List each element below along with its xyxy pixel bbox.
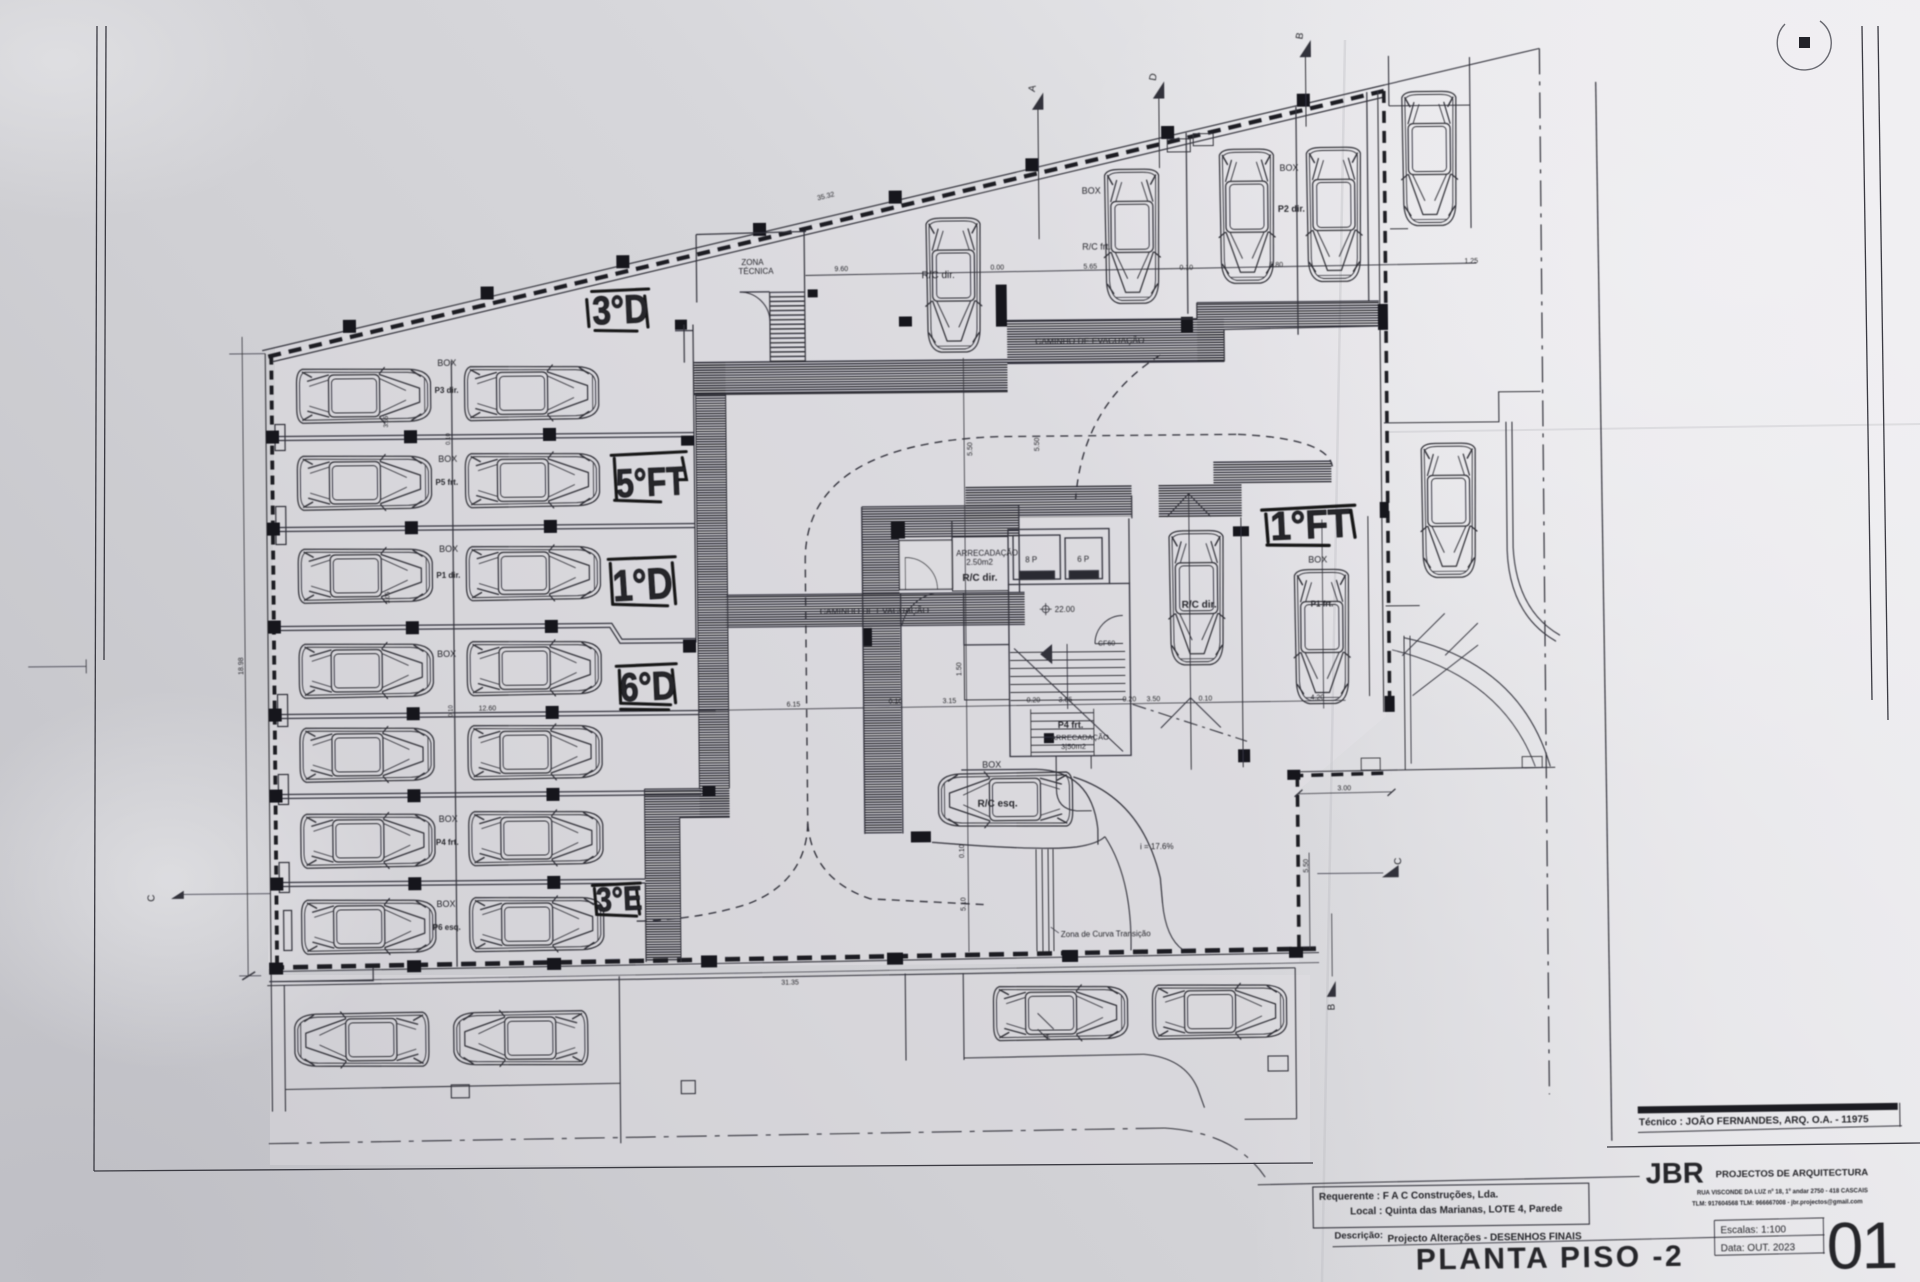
svg-text:P4 frt.: P4 frt. [436,838,459,847]
svg-text:4.20: 4.20 [1311,695,1325,702]
svg-text:TÉCNICA: TÉCNICA [738,267,774,276]
svg-text:R/C dir.: R/C dir. [1182,600,1217,611]
svg-text:3°D: 3°D [591,287,649,333]
svg-text:0.00: 0.00 [990,265,1004,272]
svg-text:0.10: 0.10 [449,705,455,717]
svg-text:0.10: 0.10 [959,844,966,858]
svg-text:Zona de Curva Transição: Zona de Curva Transição [1061,929,1151,939]
svg-text:BOX: BOX [982,760,1001,770]
svg-text:3.00: 3.00 [1337,785,1351,792]
svg-text:5.65: 5.65 [1083,264,1097,271]
svg-text:P4 frt.: P4 frt. [1058,720,1084,730]
svg-text:P1 frt.: P1 frt. [1311,599,1334,608]
svg-text:PLANTA PISO -2: PLANTA PISO -2 [1416,1240,1685,1277]
svg-text:0.10: 0.10 [889,699,903,706]
svg-text:5.10: 5.10 [960,897,967,911]
svg-text:C: C [1393,858,1404,865]
svg-text:BOX: BOX [437,649,456,659]
svg-text:18.98: 18.98 [238,657,245,675]
svg-text:R/C dir.: R/C dir. [921,270,954,281]
svg-text:R/C esq.: R/C esq. [978,798,1018,809]
svg-text:A: A [1043,1033,1052,1039]
svg-text:5.50: 5.50 [967,442,974,456]
svg-text:3.65: 3.65 [384,415,390,427]
svg-text:P3 dir.: P3 dir. [435,386,459,395]
svg-text:1.50: 1.50 [956,662,963,676]
svg-text:01: 01 [1826,1208,1896,1282]
svg-text:CAMINHO DE EVACUAÇÃO: CAMINHO DE EVACUAÇÃO [820,605,930,616]
svg-text:0.10: 0.10 [1199,696,1213,703]
svg-text:P2 dir.: P2 dir. [1278,204,1305,214]
svg-text:2.50m2: 2.50m2 [966,558,993,567]
svg-text:CF60: CF60 [1098,641,1115,648]
svg-text:BOX: BOX [437,358,456,368]
svg-text:0.10: 0.10 [1179,265,1193,272]
svg-text:R/C dir.: R/C dir. [962,573,997,584]
svg-text:P6 esq.: P6 esq. [433,923,461,932]
svg-text:31.35: 31.35 [781,980,799,987]
svg-text:CAMINHO DE EVACUAÇÃO: CAMINHO DE EVACUAÇÃO [1035,335,1145,346]
svg-text:6 P: 6 P [1077,555,1089,564]
svg-text:1.25: 1.25 [1464,258,1478,265]
svg-text:BOX: BOX [1308,554,1327,564]
svg-text:BOX: BOX [439,544,458,554]
svg-text:3°E: 3°E [595,879,643,919]
svg-text:ZONA: ZONA [741,258,764,267]
svg-text:6°D: 6°D [619,664,677,710]
svg-text:PROJECTOS DE ARQUITECTURA: PROJECTOS DE ARQUITECTURA [1716,1167,1869,1180]
svg-text:3|50m2: 3|50m2 [1061,742,1086,751]
svg-text:JBR: JBR [1645,1158,1704,1191]
svg-text:22.00: 22.00 [1055,605,1076,614]
svg-text:3.65: 3.65 [1059,697,1073,704]
svg-text:C: C [146,894,157,901]
svg-text:3.15: 3.15 [943,698,957,705]
svg-text:BOX: BOX [1279,163,1298,173]
svg-text:Descrição:: Descrição: [1334,1230,1383,1242]
svg-text:5°FT: 5°FT [615,459,687,506]
svg-text:Escalas: 1:100: Escalas: 1:100 [1720,1224,1786,1236]
svg-text:P5 frt.: P5 frt. [435,478,458,487]
svg-text:8 P: 8 P [1025,555,1037,564]
svg-text:9.60: 9.60 [834,266,848,273]
svg-text:5.50: 5.50 [1034,437,1041,451]
svg-text:Data: OUT. 2023: Data: OUT. 2023 [1721,1242,1796,1254]
svg-text:1°FT: 1°FT [1269,501,1351,549]
svg-text:BOX: BOX [436,899,455,909]
svg-text:B: B [1327,1003,1338,1010]
svg-text:0.20: 0.20 [1027,697,1041,704]
svg-text:R/C frt.: R/C frt. [1082,242,1111,252]
svg-text:BOX: BOX [1082,186,1101,196]
svg-text:3.50: 3.50 [1147,696,1161,703]
svg-text:P1 dir.: P1 dir. [436,571,460,580]
svg-text:6.15: 6.15 [787,702,801,709]
svg-text:0.20: 0.20 [1123,696,1137,703]
svg-text:3.05: 3.05 [386,591,392,603]
svg-text:5.50: 5.50 [1303,859,1310,873]
svg-text:ARRECADAÇÃO: ARRECADAÇÃO [1051,733,1109,743]
svg-text:1°D: 1°D [611,559,674,612]
svg-text:ARRECADAÇÃO: ARRECADAÇÃO [956,548,1018,558]
svg-text:12.60: 12.60 [479,705,497,712]
svg-text:i = 17.6%: i = 17.6% [1140,842,1174,851]
svg-text:5.80: 5.80 [1269,262,1283,269]
svg-text:BOX: BOX [438,454,457,464]
svg-text:0.10: 0.10 [446,433,452,445]
svg-text:BOX: BOX [439,814,458,824]
